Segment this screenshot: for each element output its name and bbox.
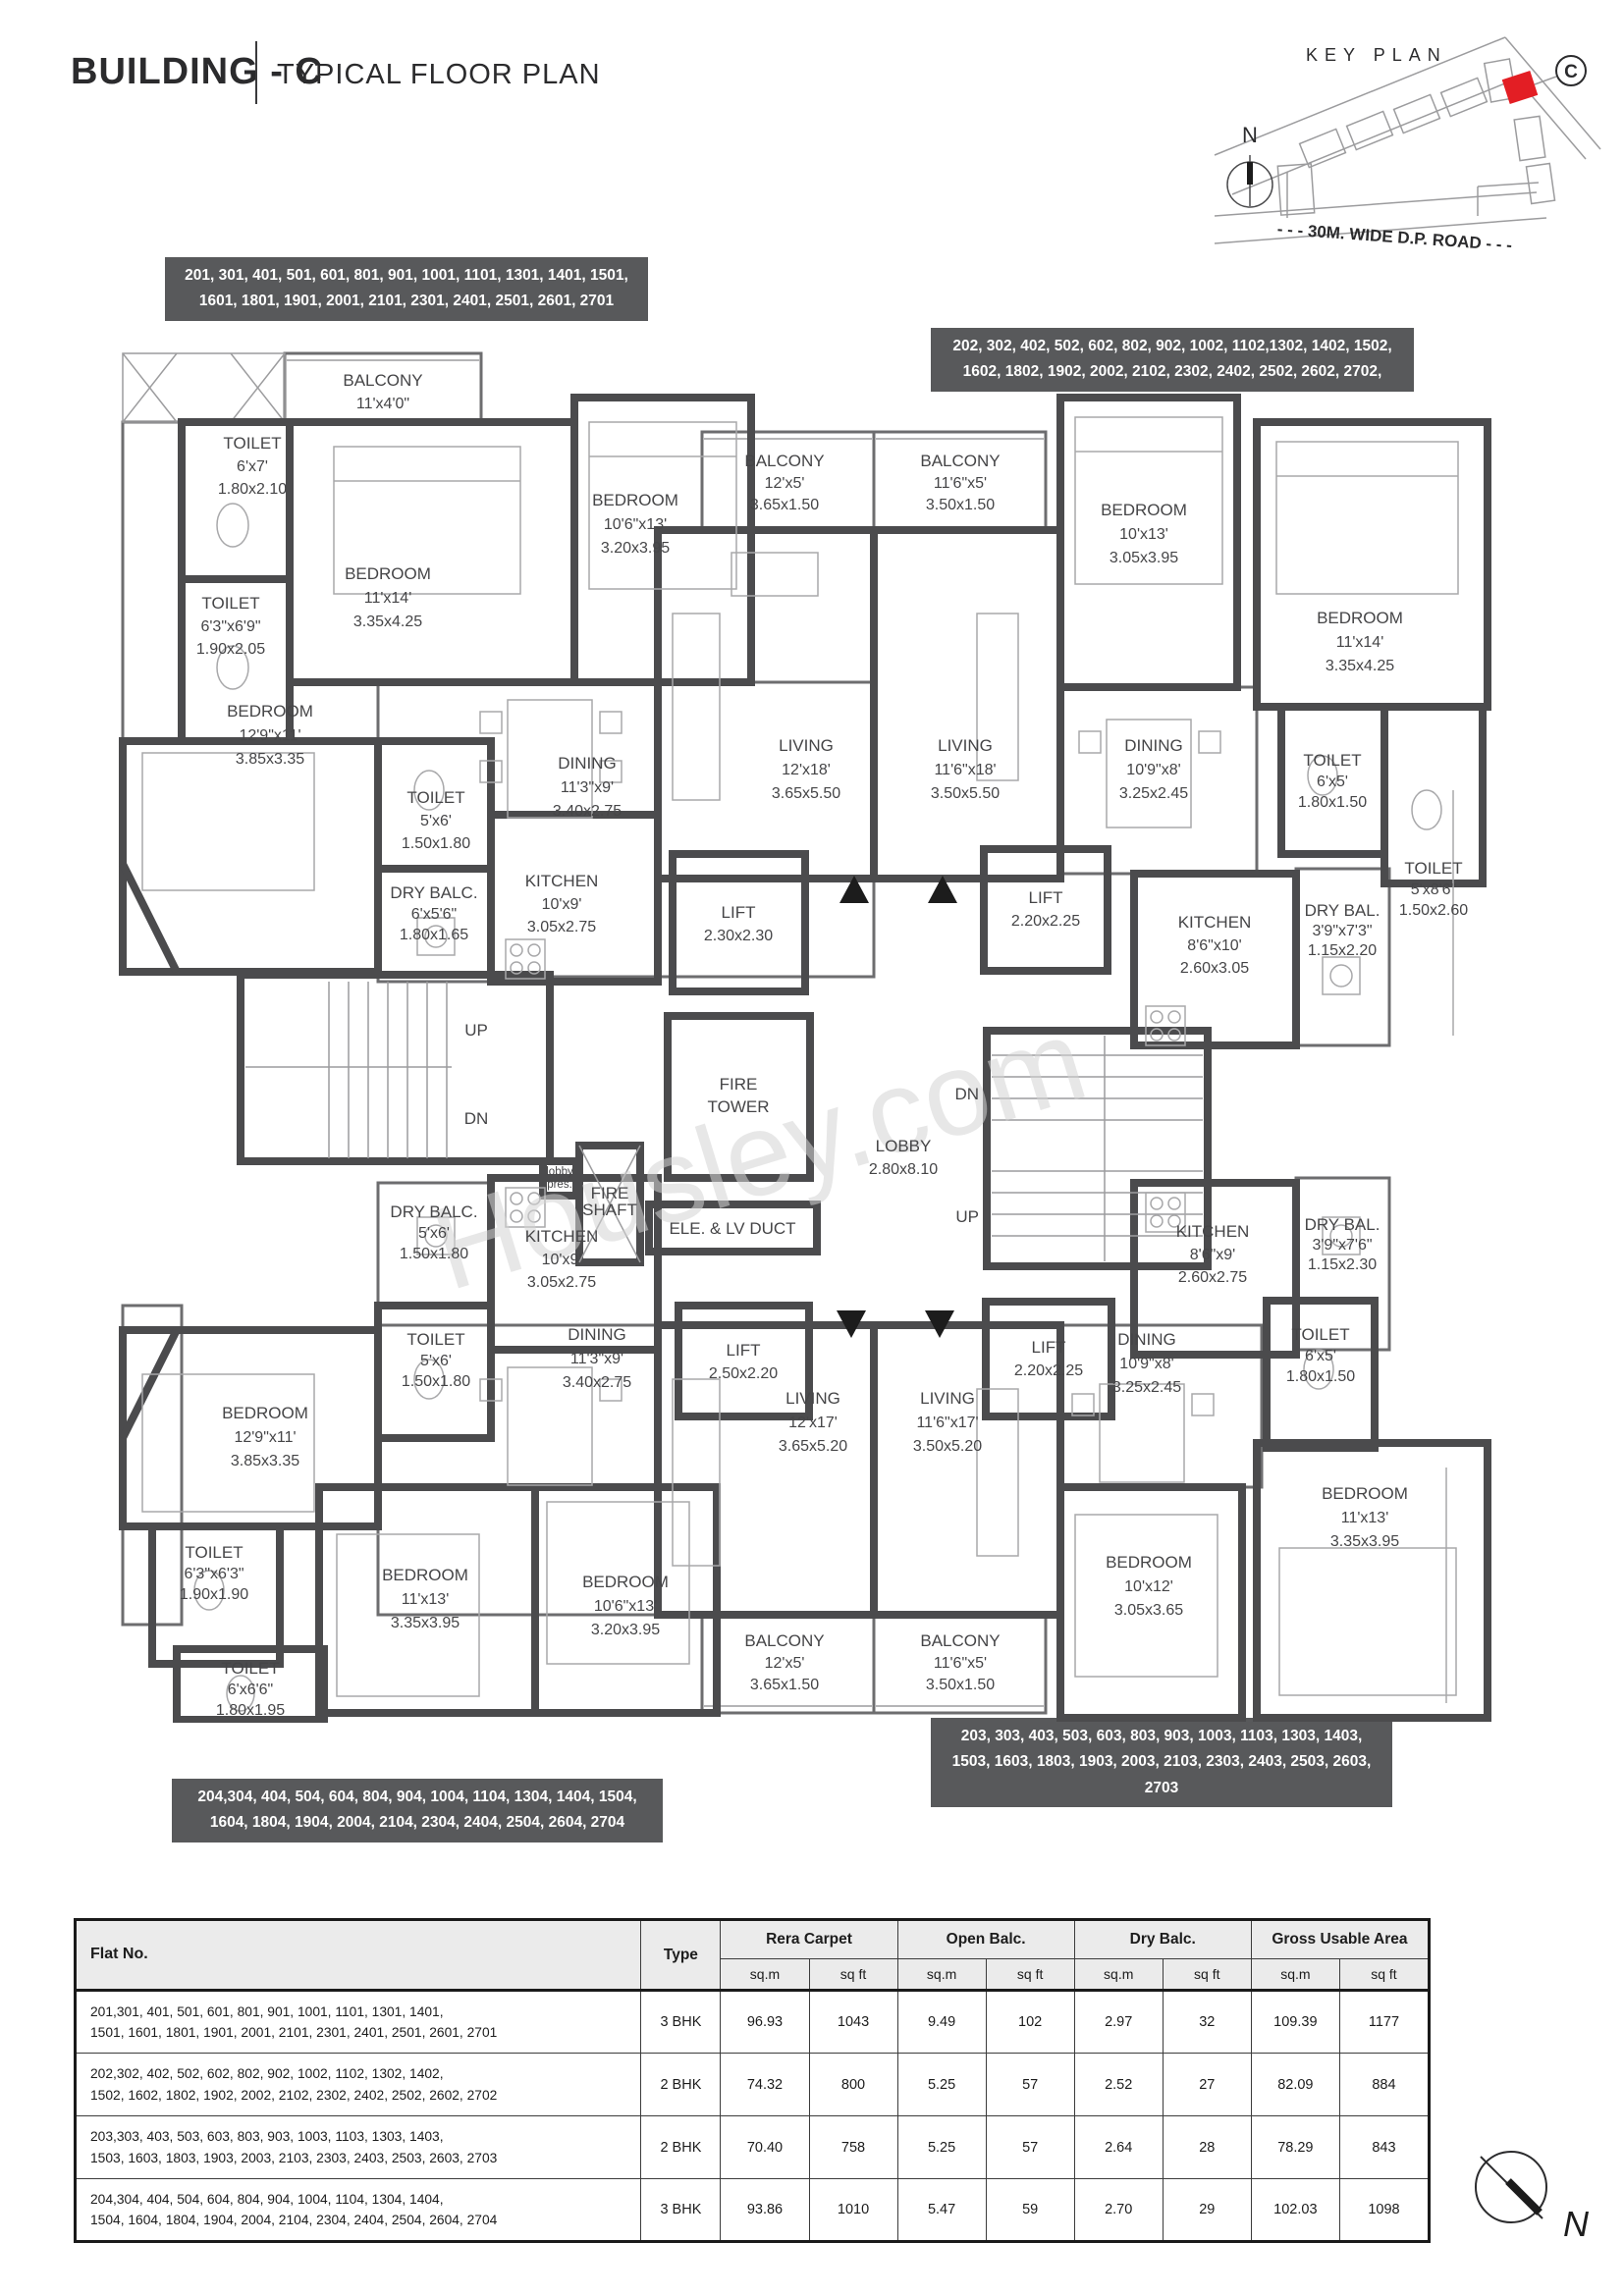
label-toilet-6x66: TOILET6'x6'6"1.80x1.95 bbox=[216, 1659, 285, 1719]
cell-value: 9.49 bbox=[897, 1991, 986, 2054]
label-bedroom-11x13-bottom-left: BEDROOM11'x13'3.35x3.95 bbox=[382, 1566, 468, 1631]
cell-value: 884 bbox=[1339, 2054, 1429, 2116]
cell-value: 32 bbox=[1163, 1991, 1251, 2054]
label-balcony-top-left: BALCONY11'x4'0" bbox=[343, 371, 422, 412]
cell-value: 2.64 bbox=[1074, 2116, 1163, 2179]
col-header-dry-balc: Dry Balc. bbox=[1074, 1920, 1251, 1959]
label-dining-top-left: DINING11'3"x9'3.40x2.75 bbox=[553, 754, 622, 820]
room-living-11x6x18 bbox=[874, 530, 1060, 879]
subheader-sqft: sq ft bbox=[986, 1959, 1074, 1991]
label-living-12x18: LIVING12'x18'3.65x5.50 bbox=[772, 736, 840, 802]
label-dry-bal-bottom-right: DRY BAL.3'9"x7'6"1.15x2.30 bbox=[1305, 1215, 1380, 1273]
label-living-1165x18: LIVING11'6"x18'3.50x5.50 bbox=[931, 736, 1000, 802]
col-header-rera: Rera Carpet bbox=[721, 1920, 897, 1959]
col-header-type: Type bbox=[641, 1920, 721, 1991]
cell-value: 59 bbox=[986, 2179, 1074, 2242]
room-bedroom-11x14-left bbox=[290, 422, 574, 682]
subheader-sqft: sq ft bbox=[1163, 1959, 1251, 1991]
label-bedroom-11x14-right: BEDROOM11'x14'3.35x4.25 bbox=[1317, 609, 1403, 674]
cell-value: 1043 bbox=[809, 1991, 897, 2054]
page-subtitle: TYPICAL FLOOR PLAN bbox=[277, 59, 601, 91]
label-toilet-6x7: TOILET6'x7'1.80x2.10 bbox=[218, 434, 287, 498]
label-bedroom-11x13-bottom-right: BEDROOM11'x13'3.35x3.95 bbox=[1322, 1484, 1408, 1550]
floor-plan-page: { "header": { "building": "BUILDING - C"… bbox=[0, 0, 1624, 2296]
cell-value: 82.09 bbox=[1251, 2054, 1339, 2116]
flat-numbers-bottom-right: 203, 303, 403, 503, 603, 803, 903, 1003,… bbox=[931, 1718, 1392, 1807]
cell-type: 2 BHK bbox=[641, 2054, 721, 2116]
cell-value: 5.25 bbox=[897, 2054, 986, 2116]
label-toilet-5x6-top: TOILET5'x6'1.50x1.80 bbox=[402, 788, 470, 852]
stair-treads-left bbox=[245, 982, 452, 1158]
label-toilet-63x69: TOILET6'3"x6'9"1.90x2.05 bbox=[196, 594, 265, 658]
cell-value: 27 bbox=[1163, 2054, 1251, 2116]
col-header-open-balc: Open Balc. bbox=[897, 1920, 1074, 1959]
label-bedroom-11x14-left: BEDROOM11'x14'3.35x4.25 bbox=[345, 564, 431, 630]
cell-value: 5.25 bbox=[897, 2116, 986, 2179]
label-living-12x17: LIVING12'x17'3.65x5.20 bbox=[779, 1389, 847, 1455]
cell-value: 74.32 bbox=[721, 2054, 809, 2116]
subheader-sqft: sq ft bbox=[1339, 1959, 1429, 1991]
label-stairs-dn-right: DN bbox=[954, 1085, 979, 1103]
cell-flats: 203,303, 403, 503, 603, 803, 903, 1003, … bbox=[76, 2116, 641, 2179]
key-plan-building-letter: C bbox=[1564, 62, 1578, 82]
cell-value: 102.03 bbox=[1251, 2179, 1339, 2242]
cell-value: 70.40 bbox=[721, 2116, 809, 2179]
col-header-flat-no: Flat No. bbox=[76, 1920, 641, 1991]
label-bedroom-129x11-top: BEDROOM12'9"x11'3.85x3.35 bbox=[227, 702, 313, 768]
table-row: 202,302, 402, 502, 602, 802, 902, 1002, … bbox=[76, 2054, 1430, 2116]
cell-value: 1098 bbox=[1339, 2179, 1429, 2242]
area-table: Flat No. Type Rera Carpet Open Balc. Dry… bbox=[74, 1918, 1431, 2243]
cell-value: 800 bbox=[809, 2054, 897, 2116]
table-row: 204,304, 404, 504, 604, 804, 904, 1004, … bbox=[76, 2179, 1430, 2242]
cell-value: 109.39 bbox=[1251, 1991, 1339, 2054]
label-living-1165x17: LIVING11'6"x17'3.50x5.20 bbox=[913, 1389, 982, 1455]
bay-chamfer-top bbox=[123, 864, 177, 972]
label-toilet-63x63: TOILET6'3"x6'3"1.90x1.90 bbox=[180, 1543, 248, 1603]
cell-value: 2.52 bbox=[1074, 2054, 1163, 2116]
compass-north-letter: N bbox=[1563, 2204, 1590, 2244]
label-balcony-12x5-top: BALCONY12'x5'3.65x1.50 bbox=[744, 452, 824, 513]
cell-value: 28 bbox=[1163, 2116, 1251, 2179]
subheader-sqm: sq.m bbox=[1251, 1959, 1339, 1991]
label-stairs-up-left: UP bbox=[464, 1021, 488, 1040]
plan-north-compass: N bbox=[1443, 2110, 1624, 2287]
key-plan-title: KEY PLAN bbox=[1306, 45, 1447, 65]
ledge-left-top bbox=[123, 422, 182, 741]
cell-value: 843 bbox=[1339, 2116, 1429, 2179]
label-lift-220-bottom: LIFT2.20x2.25 bbox=[1014, 1338, 1083, 1379]
subheader-sqm: sq.m bbox=[897, 1959, 986, 1991]
label-lift-220-top: LIFT2.20x2.25 bbox=[1011, 888, 1080, 930]
svg-text:N: N bbox=[1242, 123, 1258, 147]
floor-plan-drawing: Housley.com BALCONY11'x4'0" TOILET6'x7'1… bbox=[83, 329, 1507, 1723]
label-dry-balc-top-left: DRY BALC.6'x5'6"1.80x1.65 bbox=[390, 883, 477, 943]
cell-value: 1010 bbox=[809, 2179, 897, 2242]
label-dry-bal-top-right: DRY BAL.3'9"x7'3"1.15x2.20 bbox=[1305, 901, 1380, 959]
cell-value: 29 bbox=[1163, 2179, 1251, 2242]
label-lobby-pres: lobbypres. bbox=[546, 1166, 573, 1191]
room-lift-220-top bbox=[984, 849, 1108, 971]
cell-value: 2.97 bbox=[1074, 1991, 1163, 2054]
label-bedroom-129x11-bottom: BEDROOM12'9"x11'3.85x3.35 bbox=[222, 1404, 308, 1469]
title-divider bbox=[255, 41, 257, 104]
label-bedroom-10x13: BEDROOM10'x13'3.05x3.95 bbox=[1101, 501, 1187, 566]
table-row: 203,303, 403, 503, 603, 803, 903, 1003, … bbox=[76, 2116, 1430, 2179]
room-toilet-5x86 bbox=[1384, 707, 1483, 883]
subheader-sqm: sq.m bbox=[1074, 1959, 1163, 1991]
cell-value: 758 bbox=[809, 2116, 897, 2179]
cell-flats: 204,304, 404, 504, 604, 804, 904, 1004, … bbox=[76, 2179, 641, 2242]
label-toilet-5x6-bottom: TOILET5'x6'1.50x1.80 bbox=[402, 1330, 470, 1390]
cell-value: 96.93 bbox=[721, 1991, 809, 2054]
room-living-12x18 bbox=[658, 530, 874, 879]
hall-bottom-right bbox=[1060, 1325, 1262, 1487]
room-staircase-left bbox=[241, 975, 550, 1161]
cell-value: 57 bbox=[986, 2116, 1074, 2179]
cell-value: 2.70 bbox=[1074, 2179, 1163, 2242]
label-kitchen-86x9: KITCHEN8'6"x9'2.60x2.75 bbox=[1176, 1222, 1250, 1286]
label-dining-top-right: DINING10'9"x8'3.25x2.45 bbox=[1119, 736, 1188, 802]
cell-type: 3 BHK bbox=[641, 2179, 721, 2242]
flat-numbers-top-left: 201, 301, 401, 501, 601, 801, 901, 1001,… bbox=[165, 257, 648, 321]
cell-flats: 201,301, 401, 501, 601, 801, 901, 1001, … bbox=[76, 1991, 641, 2054]
cell-value: 78.29 bbox=[1251, 2116, 1339, 2179]
table-row: 201,301, 401, 501, 601, 801, 901, 1001, … bbox=[76, 1991, 1430, 2054]
key-plan: KEY PLAN C N - - - 30M. WIDE D.P. ROAD -… bbox=[1193, 10, 1624, 275]
bay-chamfer-bottom bbox=[123, 1330, 177, 1438]
label-kitchen-top-left: KITCHEN10'x9'3.05x2.75 bbox=[525, 872, 599, 935]
label-balcony-1165-bottom: BALCONY11'6"x5'3.50x1.50 bbox=[920, 1631, 1000, 1693]
label-dining-bottom-right: DINING10'9"x8'3.25x2.45 bbox=[1112, 1330, 1181, 1396]
label-kitchen-86x10: KITCHEN8'6"x10'2.60x3.05 bbox=[1178, 913, 1252, 977]
col-header-gross: Gross Usable Area bbox=[1251, 1920, 1429, 1959]
cell-type: 3 BHK bbox=[641, 1991, 721, 2054]
key-plan-north-compass: N bbox=[1227, 123, 1272, 207]
label-bedroom-1063x13-bottom: BEDROOM10'6"x13'3.20x3.95 bbox=[582, 1573, 669, 1638]
subheader-sqft: sq ft bbox=[809, 1959, 897, 1991]
label-lift-230: LIFT2.30x2.30 bbox=[704, 903, 773, 944]
cell-type: 2 BHK bbox=[641, 2116, 721, 2179]
cell-value: 93.86 bbox=[721, 2179, 809, 2242]
label-stairs-up-right: UP bbox=[955, 1207, 979, 1226]
label-stairs-dn-left: DN bbox=[464, 1109, 489, 1128]
key-plan-road-label: - - - 30M. WIDE D.P. ROAD - - - bbox=[1276, 220, 1512, 255]
room-lift-220-bottom bbox=[986, 1302, 1111, 1416]
cell-value: 102 bbox=[986, 1991, 1074, 2054]
cell-flats: 202,302, 402, 502, 602, 802, 902, 1002, … bbox=[76, 2054, 641, 2116]
subheader-sqm: sq.m bbox=[721, 1959, 809, 1991]
label-balcony-1165-top: BALCONY11'6"x5'3.50x1.50 bbox=[920, 452, 1000, 513]
cell-value: 1177 bbox=[1339, 1991, 1429, 2054]
cell-value: 57 bbox=[986, 2054, 1074, 2116]
label-bedroom-10x12: BEDROOM10'x12'3.05x3.65 bbox=[1106, 1553, 1192, 1619]
label-lift-250: LIFT2.50x2.20 bbox=[709, 1341, 778, 1382]
label-toilet-5x86: TOILET5'x8'6"1.50x2.60 bbox=[1399, 859, 1468, 919]
label-balcony-12x5-bottom: BALCONY12'x5'3.65x1.50 bbox=[744, 1631, 824, 1693]
flat-numbers-bottom-left: 204,304, 404, 504, 604, 804, 904, 1004, … bbox=[172, 1779, 663, 1842]
label-dining-bottom-left: DINING11'3"x9'3.40x2.75 bbox=[563, 1325, 631, 1391]
label-ele-lv-duct: ELE. & LV DUCT bbox=[669, 1219, 795, 1238]
cell-value: 5.47 bbox=[897, 2179, 986, 2242]
planter-hatch-top-left bbox=[123, 353, 285, 422]
label-bedroom-1063x13-top: BEDROOM10'6"x13'3.20x3.95 bbox=[592, 491, 678, 557]
